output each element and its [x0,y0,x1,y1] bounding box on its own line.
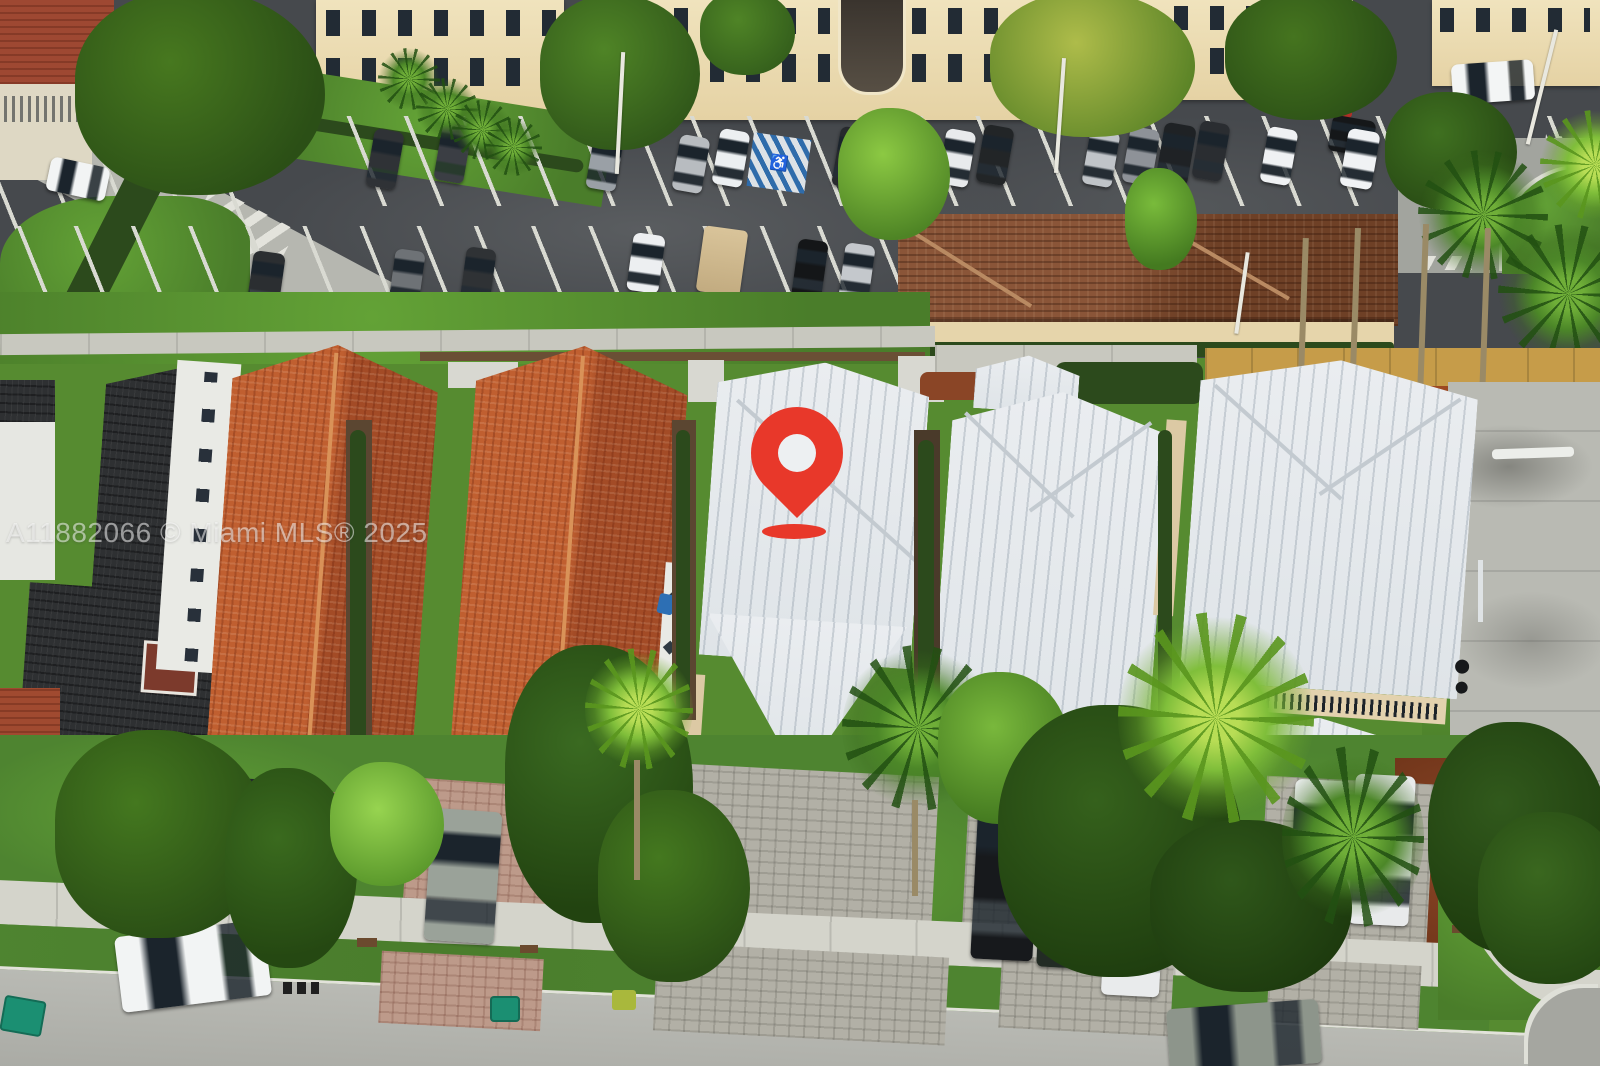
hedge-row [350,430,366,750]
shrub [330,762,444,886]
sidewalk-mat [520,945,538,953]
ac-unit [1455,681,1468,694]
entry-arch [838,0,906,95]
mls-watermark: A11882066 © Miami MLS® 2025 [6,517,428,549]
palm-tree [585,648,693,770]
tree [75,0,325,195]
palm-tree [484,118,542,176]
tree [598,790,750,982]
lawn-markers [283,982,319,994]
tree [1225,0,1397,120]
tree [838,108,950,240]
palm-trunk [634,760,640,880]
palm-tree [1118,612,1314,824]
tree [1125,168,1197,270]
aerial-photo: ♿ [0,0,1600,1066]
trash-bin [0,995,47,1038]
palm-trunk [912,800,918,896]
tree [1478,812,1600,984]
trash-bin [490,996,520,1022]
sidewalk-mat [357,938,377,947]
window-row [1440,8,1590,32]
utility-box [612,990,636,1010]
window-row [326,10,556,36]
pin-shadow [762,524,826,539]
handicap-parking-hatch: ♿ [747,132,812,194]
handicap-icon: ♿ [768,153,789,173]
street-parked-suv [1166,999,1322,1066]
ac-unit [1455,659,1470,674]
garage-doors [4,96,84,122]
tree [990,0,1195,137]
parked-box-truck [696,225,749,296]
palm-tree [1282,746,1424,928]
